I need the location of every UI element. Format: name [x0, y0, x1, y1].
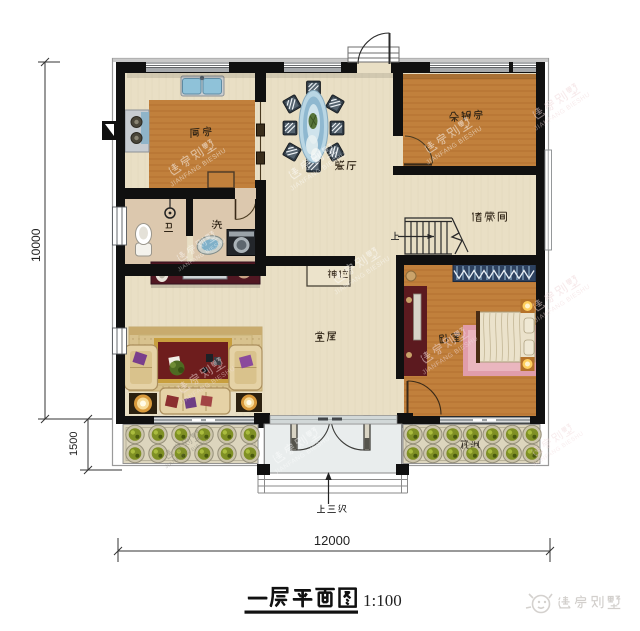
- svg-text:1500: 1500: [68, 432, 80, 456]
- svg-text:12000: 12000: [314, 533, 350, 548]
- svg-text:1:100: 1:100: [363, 591, 402, 610]
- svg-text:10000: 10000: [29, 228, 43, 262]
